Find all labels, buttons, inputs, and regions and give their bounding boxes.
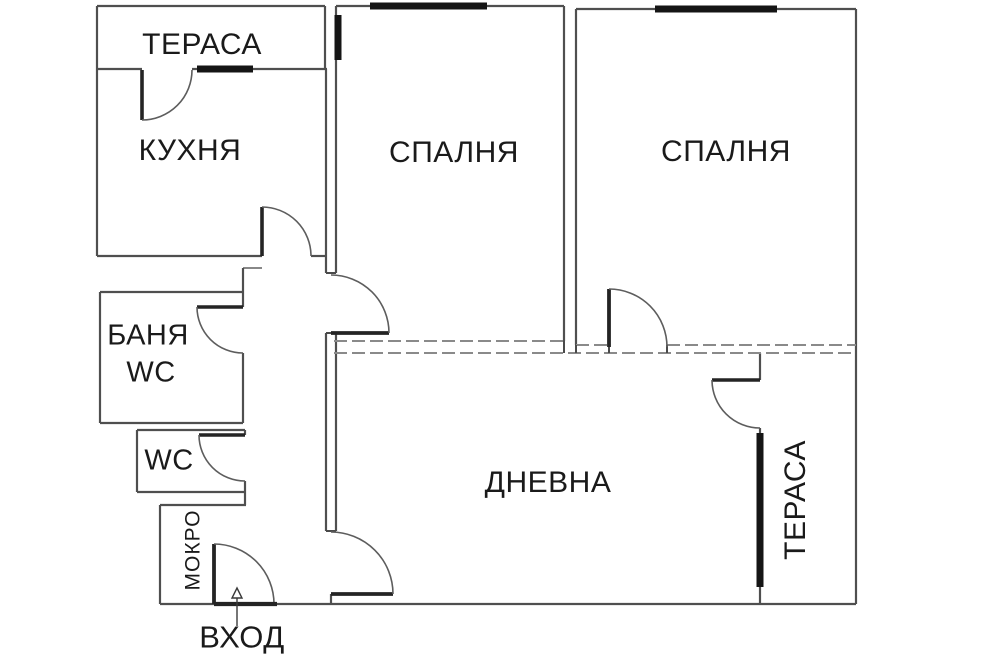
- room-label-toilet: WC: [144, 447, 193, 476]
- room-label-wet-room: МОКРО: [183, 510, 204, 591]
- room-label-bathroom-line1: БАНЯ: [107, 322, 189, 351]
- door-entrance: [214, 544, 277, 604]
- entrance-arrow-head: [232, 588, 242, 598]
- walls-faded: [334, 341, 856, 353]
- entrance-label: ВХОД: [199, 622, 284, 653]
- room-label-kitchen: КУХНЯ: [139, 136, 242, 166]
- room-label-terrace-top: ТЕРАСА: [142, 30, 262, 60]
- room-label-bedroom-right: СПАЛНЯ: [661, 137, 791, 167]
- floor-plan: ТЕРАСА КУХНЯ СПАЛНЯ СПАЛНЯ БАНЯ WC WC МО…: [0, 0, 1000, 666]
- room-label-bedroom-middle: СПАЛНЯ: [389, 138, 519, 168]
- walls: [97, 6, 856, 604]
- door-living-room: [331, 532, 393, 594]
- door-terrace-kitchen: [142, 70, 192, 120]
- door-toilet: [199, 435, 245, 481]
- room-label-terrace-right: ТЕРАСА: [781, 440, 811, 560]
- windows: [197, 6, 777, 587]
- room-label-living-room: ДНЕВНА: [485, 468, 612, 498]
- door-bedroom-middle: [331, 275, 389, 333]
- door-bedroom-right: [609, 289, 667, 347]
- door-kitchen-corridor: [262, 207, 311, 256]
- door-bathroom: [197, 307, 243, 353]
- room-label-bathroom-line2: WC: [126, 359, 175, 388]
- door-terrace-living: [712, 380, 760, 428]
